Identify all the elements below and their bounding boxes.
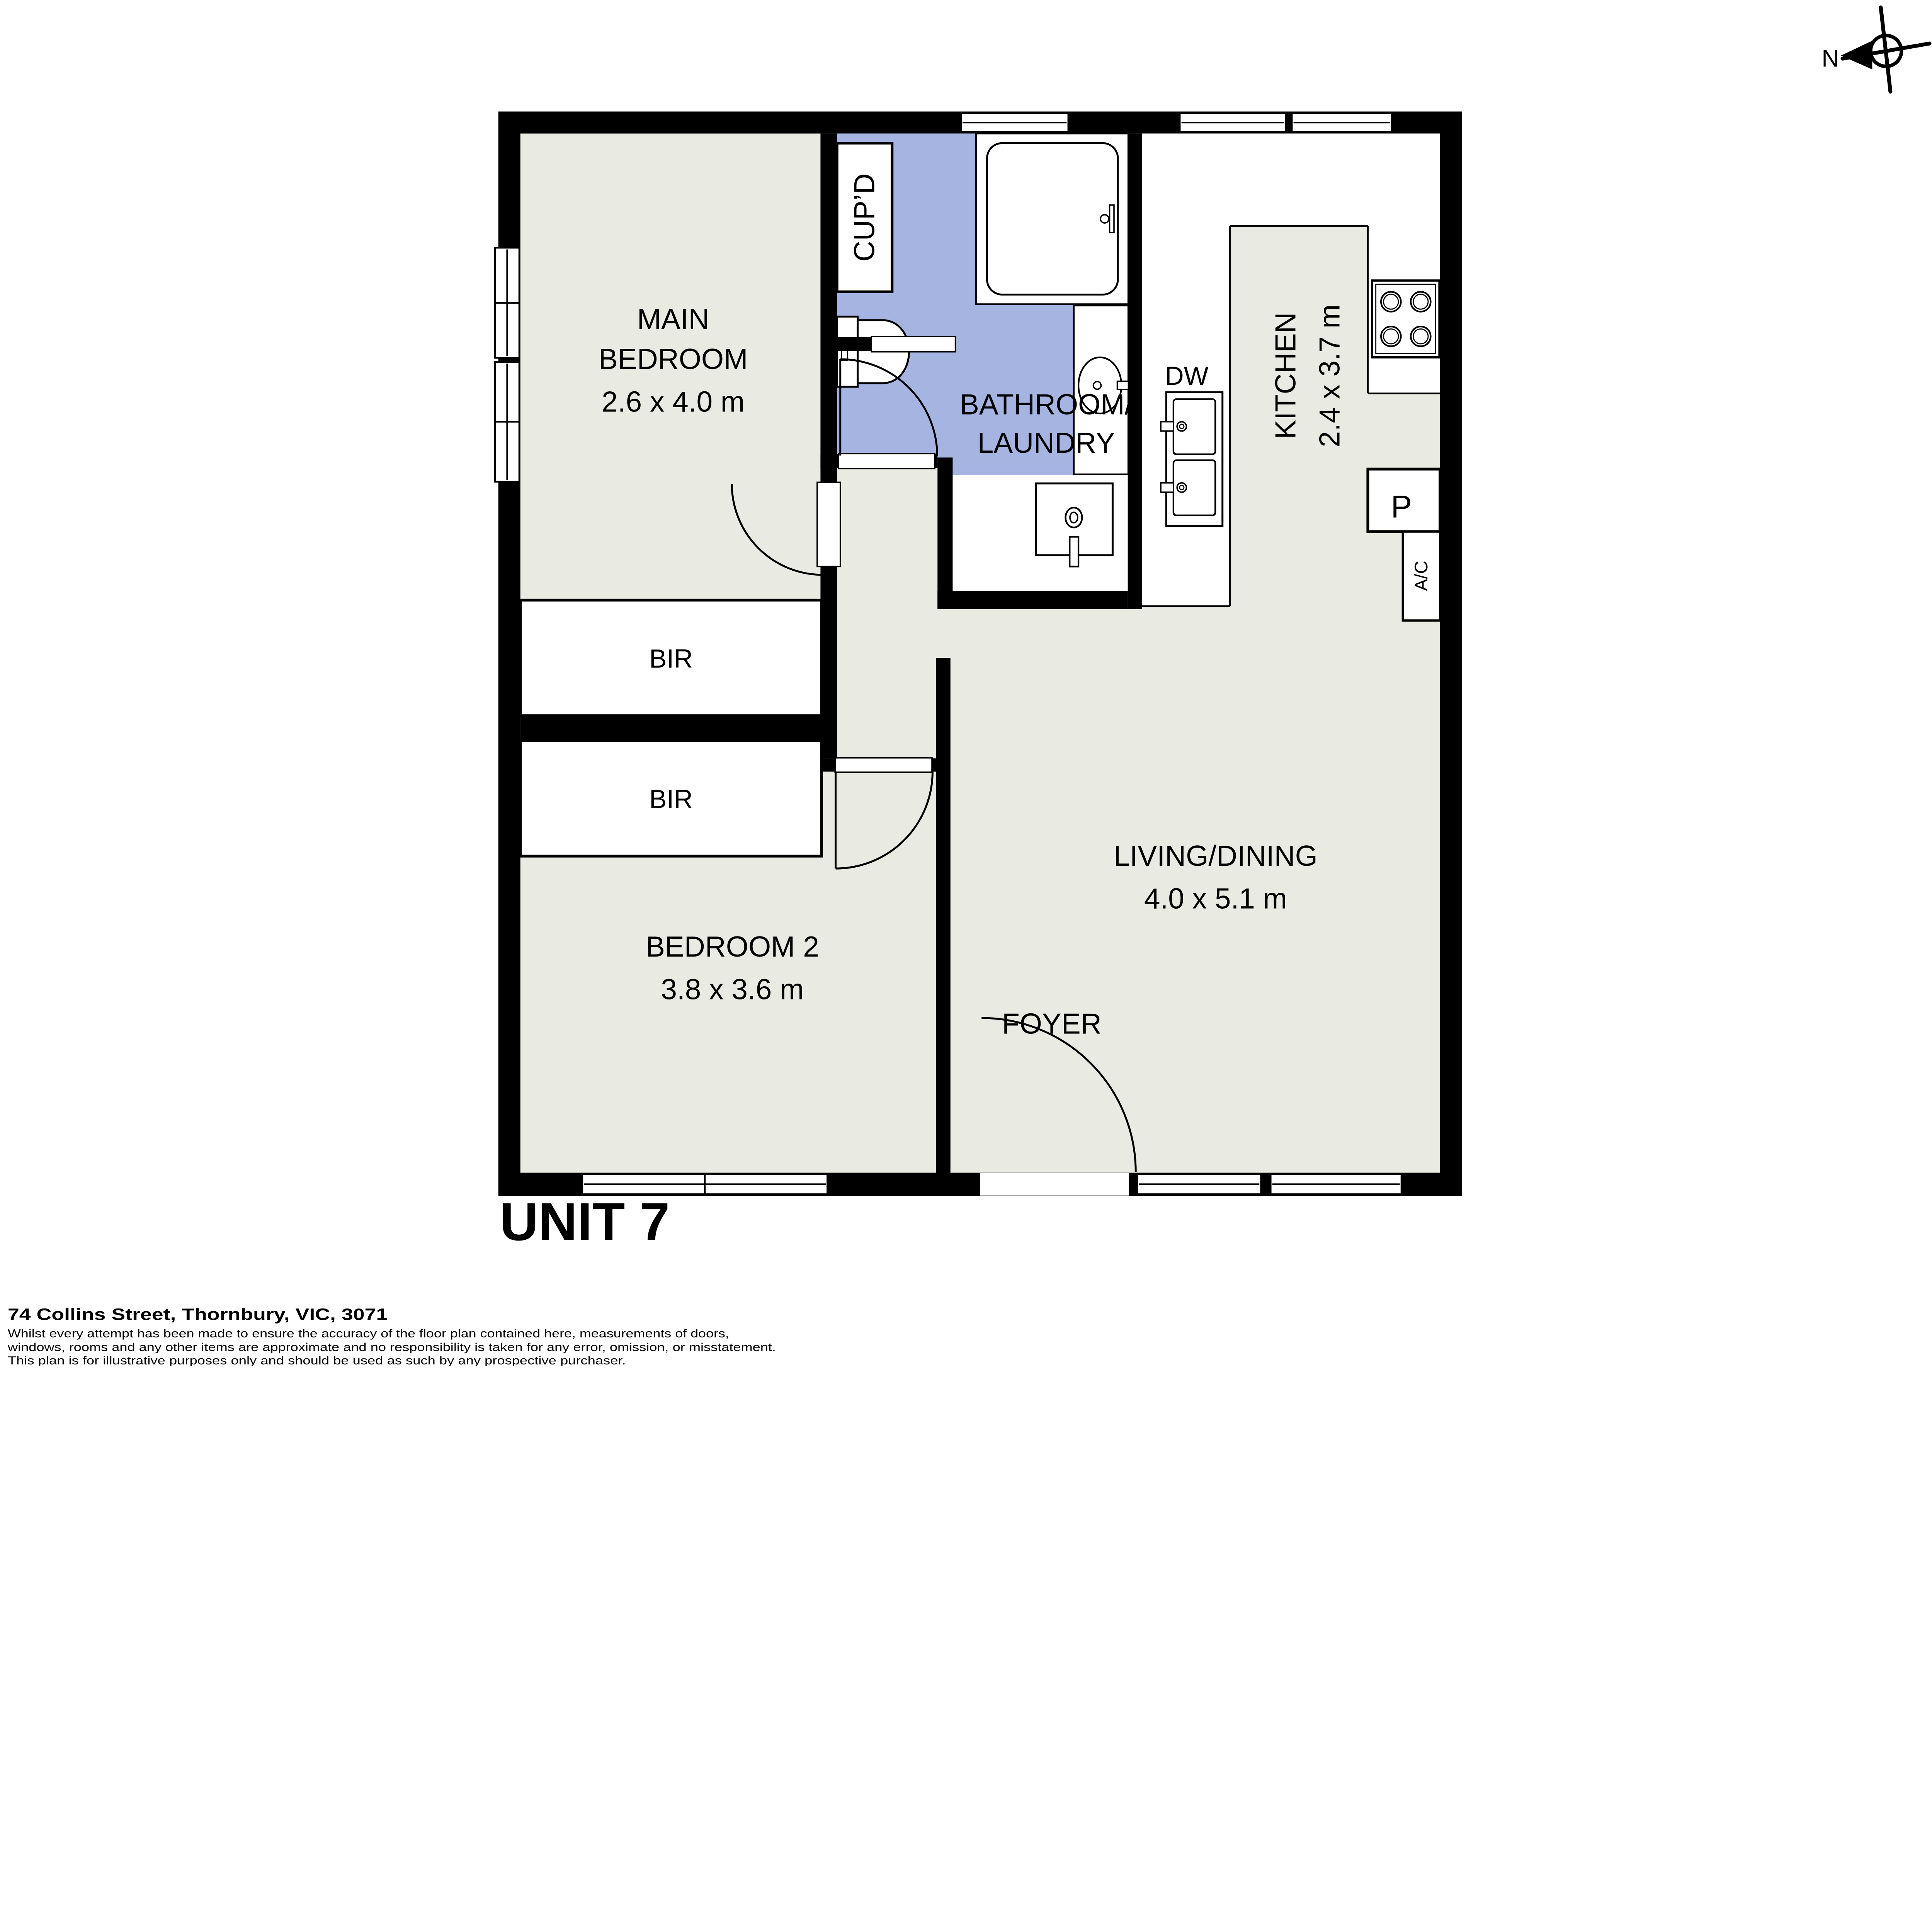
living-dining-label: LIVING/DINING xyxy=(1114,840,1318,872)
bathroom-label-1: BATHROOM/ xyxy=(960,388,1133,420)
dishwasher-label: DW xyxy=(1165,362,1209,391)
compass-north-label: N xyxy=(1821,45,1839,72)
cupboard-label: CUP’D xyxy=(848,173,880,262)
bedroom2-dims: 3.8 x 3.6 m xyxy=(661,973,804,1006)
bathroom-label-2: LAUNDRY xyxy=(978,427,1115,459)
bedroom-window-2 xyxy=(495,362,519,482)
bedroom-window-1 xyxy=(495,248,519,358)
disclaimer-line-1: Whilst every attempt has been made to en… xyxy=(8,1327,729,1340)
living-window-2 xyxy=(1270,1174,1401,1194)
floor-plan-canvas: MAIN BEDROOM 2.6 x 4.0 m BIR BIR BEDROOM… xyxy=(0,0,1932,1366)
address: 74 Collins Street, Thornbury, VIC, 3071 xyxy=(8,1305,388,1324)
kitchen-window-1 xyxy=(1180,113,1286,132)
bathroom-door xyxy=(838,454,935,468)
kitchen-window-2 xyxy=(1292,113,1392,132)
main-bedroom-label-1: MAIN xyxy=(637,303,709,335)
main-bedroom-dims: 2.6 x 4.0 m xyxy=(602,385,745,418)
pantry-label: P xyxy=(1391,489,1412,525)
kitchen-label: KITCHEN xyxy=(1269,312,1302,439)
main-bedroom-door xyxy=(817,482,840,566)
living-window-1 xyxy=(1137,1174,1261,1194)
bath-tub xyxy=(976,134,1128,304)
kitchen-dims: 2.4 x 3.7 m xyxy=(1313,304,1346,447)
living-dining-dims: 4.0 x 5.1 m xyxy=(1144,882,1287,914)
bathroom-window xyxy=(961,113,1068,132)
entry-opening xyxy=(980,1173,1129,1196)
foyer-label: FOYER xyxy=(1002,1008,1102,1040)
bath-tap-icon xyxy=(1110,205,1114,233)
bir-second-label: BIR xyxy=(649,785,693,814)
toilet-panel xyxy=(871,336,955,352)
disclaimer-line-3: This plan is for illustrative purposes o… xyxy=(8,1354,626,1366)
bedroom2-label: BEDROOM 2 xyxy=(646,930,819,963)
cooktop xyxy=(1372,280,1440,357)
floor-plan-page: MAIN BEDROOM 2.6 x 4.0 m BIR BIR BEDROOM… xyxy=(0,0,1932,1366)
kitchen-sink xyxy=(1161,392,1223,526)
ac-label: A/C xyxy=(1411,561,1431,591)
laundry-trough xyxy=(1036,483,1112,566)
bedroom2-window xyxy=(582,1174,827,1194)
main-bedroom-label-2: BEDROOM xyxy=(599,343,748,375)
unit-title: UNIT 7 xyxy=(500,1192,670,1252)
bedroom2-door xyxy=(835,758,932,772)
disclaimer-line-2: windows, rooms and any other items are a… xyxy=(7,1341,776,1354)
bir-main-label: BIR xyxy=(649,644,693,673)
